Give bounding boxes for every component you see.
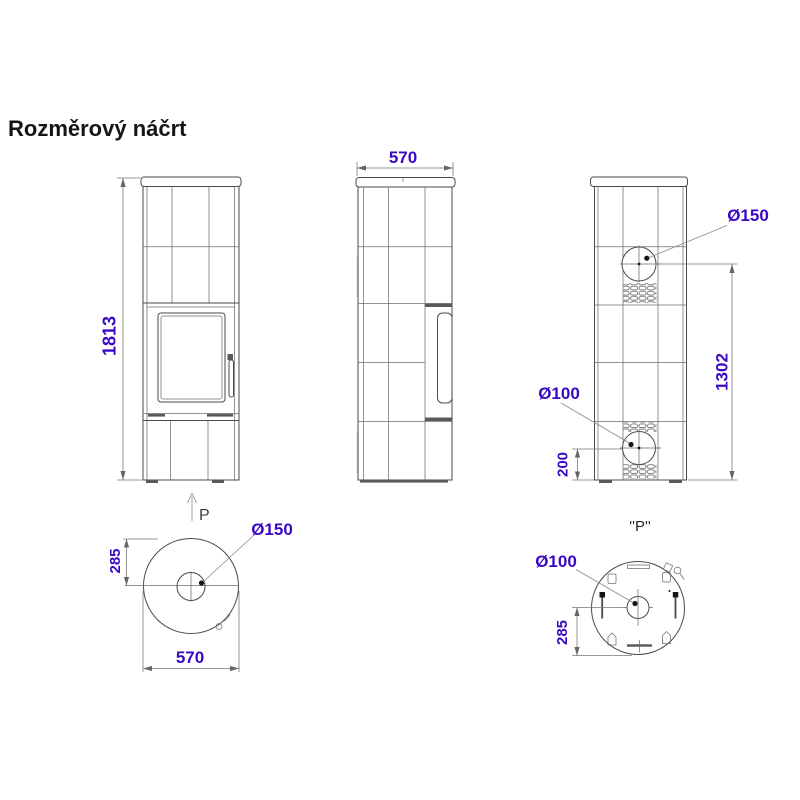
front-top-plate: [141, 177, 241, 187]
flue-center-mark: [638, 263, 641, 266]
leader-line: [576, 570, 633, 603]
bottom-hole-top-left: [608, 574, 616, 584]
arrow-up-icon: [729, 264, 734, 273]
bottom-latch-plate: [663, 563, 672, 572]
arrow-up-icon: [574, 608, 579, 617]
arrow-down-icon: [574, 647, 579, 656]
front-foot-right: [212, 480, 224, 483]
rear-foot-right: [669, 480, 682, 483]
front-door-glass-inner: [161, 316, 222, 399]
inlet-diameter-label: Ø100: [538, 384, 580, 403]
bottom-slot-top: [628, 565, 650, 569]
arrow-down-icon: [124, 577, 129, 586]
side-door-profile: [438, 313, 453, 403]
bottom-inlet-leader-dot: [632, 601, 637, 606]
flue-height-label: 1302: [712, 353, 731, 391]
arrow-up-icon: [188, 493, 197, 521]
bottom-offset-label: 285: [554, 620, 571, 645]
label-inlet-diameter-rear: Ø100: [538, 384, 629, 443]
dimension-inlet-height: 200: [554, 449, 622, 480]
side-hinge-strip-lower: [357, 430, 359, 474]
rear-foot-left: [599, 480, 612, 483]
arrow-up-icon: [575, 449, 580, 458]
arrow-down-icon: [575, 472, 580, 481]
bottom-dot-mark: [669, 590, 671, 592]
view-direction-label: P: [199, 507, 210, 524]
dimension-lines-1813: [117, 178, 142, 480]
arrow-down-icon: [729, 471, 734, 480]
flue-diameter-label: Ø150: [727, 206, 769, 225]
dimension-top-width: 570: [143, 591, 239, 672]
inlet-center-mark: [638, 447, 641, 450]
side-door-top-edge: [425, 304, 452, 308]
arrow-up-icon: [124, 539, 129, 548]
front-foot-left: [146, 480, 158, 483]
arrow-right-icon: [230, 666, 239, 671]
dimension-side-width: 570: [357, 148, 453, 176]
arrow-left-icon: [357, 165, 366, 170]
dimension-front-height: 1813: [99, 178, 142, 480]
leader-line: [649, 226, 727, 258]
side-base-strip: [360, 480, 448, 483]
door-handle: [229, 360, 234, 397]
front-hinge-mark-right: [207, 414, 233, 417]
side-hinge-strip-upper: [357, 256, 359, 298]
bottom-view-title: ''P'': [629, 518, 651, 535]
rear-grille-upper: [624, 283, 657, 303]
top-offset-label: 285: [107, 548, 124, 573]
leader-line: [561, 403, 630, 443]
inlet-height-label: 200: [554, 452, 571, 477]
front-door-glass: [158, 313, 225, 402]
side-view: [356, 178, 455, 483]
side-door-bottom-edge: [425, 418, 452, 422]
page-title: Rozměrový náčrt: [8, 116, 187, 141]
rear-grille-lower: [624, 464, 657, 479]
dimension-flue-height: 1302: [661, 264, 738, 480]
arrow-left-icon: [143, 666, 152, 671]
door-handle-pivot: [228, 354, 234, 360]
rear-grille-middle: [624, 423, 657, 433]
label-inlet-diameter-bottom: Ø100: [535, 552, 633, 603]
inlet-diameter-label: Ø100: [535, 552, 577, 571]
rear-view: [591, 177, 688, 483]
flue-leader-dot: [644, 256, 649, 261]
side-width-label: 570: [389, 148, 417, 167]
top-view: [125, 539, 239, 634]
dimension-lines-200: [572, 449, 622, 480]
flue-diameter-label: Ø150: [251, 520, 293, 539]
bottom-hole-bottom-left: [608, 633, 616, 645]
front-view: [141, 177, 241, 483]
bottom-latch-tail: [680, 574, 684, 580]
bottom-pin-right: [673, 592, 679, 598]
view-direction-arrow: P: [188, 493, 210, 524]
rear-top-plate: [591, 177, 688, 187]
side-top-plate: [356, 178, 455, 188]
bottom-pin-left: [600, 592, 606, 598]
arrow-up-icon: [120, 178, 125, 187]
dimensional-drawing: Rozměrový náčrt 1813 P: [0, 0, 800, 800]
front-hinge-mark-left: [148, 414, 165, 417]
arrow-down-icon: [120, 471, 125, 480]
label-flue-diameter-top: Ø150: [203, 520, 293, 582]
bottom-latch-knob: [674, 567, 681, 574]
label-flue-diameter-rear: Ø150: [649, 206, 769, 258]
arrow-right-icon: [444, 165, 453, 170]
front-height-label: 1813: [99, 316, 119, 356]
top-width-label: 570: [176, 648, 204, 667]
dimension-bottom-offset: 285: [554, 608, 632, 656]
bottom-hole-bottom-right: [663, 632, 671, 644]
